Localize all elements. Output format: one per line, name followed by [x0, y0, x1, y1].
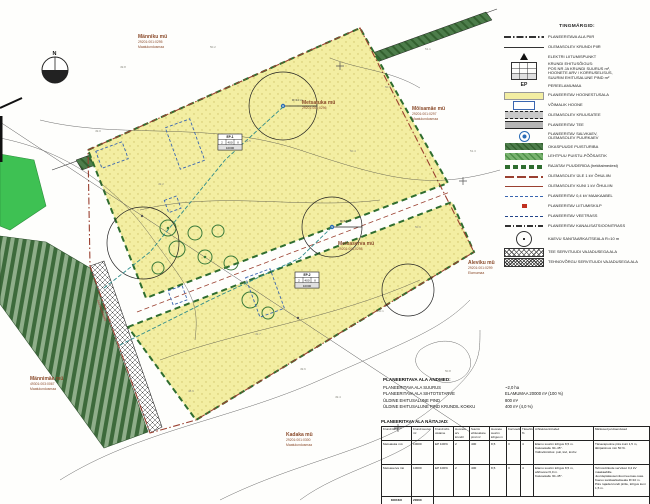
conifer-band-icon	[504, 143, 544, 150]
svg-text:29201:001:0299: 29201:001:0299	[468, 266, 493, 270]
legend-item: TEHNOVÕRGU SERVITUUDI VAJADUSEGA ALA	[504, 258, 650, 267]
ep-box-1: EP-1 2 400 II 10000	[218, 134, 242, 150]
sewer-line-icon	[504, 225, 544, 226]
summary-row: PLANEERITAVA ALA SUURUS~2,0 ha	[383, 385, 645, 390]
legend-item: PLANEERITAVA ALA PIIR	[504, 33, 650, 42]
svg-text:49.8: 49.8	[120, 65, 126, 69]
north-label: N	[53, 51, 57, 57]
grass-patch	[0, 154, 46, 230]
svg-text:50.6: 50.6	[385, 85, 391, 89]
deciduous-band-icon	[504, 153, 544, 160]
svg-text:Maatulundusmaa: Maatulundusmaa	[286, 443, 312, 447]
area-summary: PLANEERITAVA ALA ANDMED: PLANEERITAVA AL…	[383, 377, 645, 411]
svg-text:49.6: 49.6	[300, 367, 306, 371]
svg-text:49.4: 49.4	[335, 395, 341, 399]
svg-text:29201:001:0295: 29201:001:0295	[138, 40, 163, 44]
legend-item: OLEMASOLEV ÜLE 1 kV ÕHULIIN	[504, 172, 650, 181]
indicators-table: Krundi tähis Krundi suurus m² Krundi sih…	[381, 426, 650, 504]
ep-box-pos: EP-2	[303, 273, 310, 277]
legend-item: KRUNDI EHITUSÕIGUS: POS NR JA KRUNDI SUU…	[504, 62, 650, 80]
detail-plan-sheet: R=10 m R=10 m EP-1 2 400 II 10000	[0, 0, 650, 504]
svg-text:50.8: 50.8	[445, 369, 451, 373]
ep-box-size: 10000	[303, 284, 312, 288]
map-neatline	[0, 116, 3, 162]
water-line-icon	[504, 216, 544, 217]
switchboard-icon	[504, 204, 544, 208]
legend-item: VÕIMALIK HOONE	[504, 101, 650, 110]
legend-item: RAJATAV PUUDERIDA (hekitaimedest)	[504, 162, 650, 171]
building-zone-icon	[504, 92, 544, 100]
svg-text:49.0: 49.0	[95, 129, 101, 133]
svg-text:51.1: 51.1	[425, 47, 431, 51]
legend-item: TEE SERVITUUDI VAJADUSEGA ALA	[504, 248, 650, 257]
legend-item: PLANEERITAV KANALISATSIOONITRASS	[504, 221, 650, 230]
summary-row: ÜLDINE EHITUSALUNE PIND KRUNDIL KOKKU400…	[383, 404, 645, 409]
svg-text:50.1: 50.1	[378, 309, 384, 313]
ep-box-floors: II	[237, 141, 239, 145]
svg-text:Maatulundusmaa: Maatulundusmaa	[30, 387, 56, 391]
ep-box-size: 10000	[226, 146, 235, 150]
svg-text:Maatulundusmaa: Maatulundusmaa	[138, 45, 164, 49]
ep-box-floors: II	[314, 279, 316, 283]
table-title: PLANEERITAVA ALA NÄITAJAD:	[381, 419, 649, 424]
svg-text:49.5: 49.5	[245, 139, 251, 143]
overhead-line-high-icon	[504, 176, 544, 178]
svg-text:29201:001:0300: 29201:001:0300	[286, 438, 311, 442]
legend-item: PLANEERITAV HOONESTUSALA	[504, 91, 650, 100]
legend-item: KAEVU SANITAARKAITSEALA R=10 m	[504, 231, 650, 247]
legend-item: PLANEERITAV TEE	[504, 121, 650, 130]
legend-item: PLANEERITAV LIITUMISKILP	[504, 202, 650, 211]
gravel-road-icon	[504, 111, 544, 119]
legend-item: OLEMASOLEV KUNI 1 kV ÕHULIIN	[504, 182, 650, 191]
svg-text:51.3: 51.3	[470, 149, 476, 153]
legend: TINGMÄRGID: PLANEERITAVA ALA PIIR OLEMAS…	[504, 24, 650, 268]
ep-box-2: EP-2 2 400 II 10000	[295, 272, 319, 288]
north-arrow: N	[42, 51, 68, 83]
summary-title: PLANEERITAVA ALA ANDMED:	[383, 377, 645, 382]
legend-item: OLEMASOLEV KRUUSATEE	[504, 111, 650, 120]
svg-text:49.7: 49.7	[255, 332, 261, 336]
legend-item: EPPEREELAMUMAA	[504, 81, 650, 90]
svg-text:29201:001:0297: 29201:001:0297	[412, 112, 437, 116]
legend-item: OLEMASOLEV KRUNDI PIIR	[504, 42, 650, 51]
svg-text:Elamumaa: Elamumaa	[468, 271, 484, 275]
tree-row-icon	[504, 165, 544, 169]
legend-item: PLANEERITAV VEETRASS	[504, 211, 650, 220]
ep-box-bp: 400	[227, 141, 232, 145]
well-icon	[504, 131, 544, 142]
road-servitude-icon	[504, 248, 544, 257]
svg-text:50.4: 50.4	[350, 149, 356, 153]
connection-point-icon	[504, 53, 544, 60]
legend-item: OKASPUUDE PUISTURIBA	[504, 142, 650, 151]
legend-item: ELEKTRI LIITUMISPUNKT	[504, 52, 650, 61]
indicators-table-block: PLANEERITAVA ALA NÄITAJAD: Krundi tähis …	[381, 419, 649, 504]
radius-label: R=10 m	[340, 219, 351, 223]
map-neatline-tick	[0, 98, 22, 108]
legend-title: TINGMÄRGID:	[504, 24, 650, 30]
area-boundary-icon	[504, 36, 544, 38]
table-row: Metsatuka mü 10000 EP 100% 2 400 8,5 II …	[382, 441, 650, 465]
svg-text:48.9: 48.9	[188, 389, 194, 393]
ground-cable-icon	[504, 196, 544, 197]
table-header-row: Krundi tähis Krundi suurus m² Krundi sih…	[382, 426, 650, 441]
table-row: Metsaserva mü 10000 EP 100% 2 400 8,5 II…	[382, 465, 650, 497]
svg-text:49301:003:0067: 49301:003:0067	[30, 382, 55, 386]
possible-house-icon	[504, 101, 544, 110]
svg-text:49.2: 49.2	[158, 182, 164, 186]
legend-item: LEHTPUU PUISTU-PÕÕSASTIK	[504, 152, 650, 161]
table-total-row: KOKKU 20000	[382, 497, 650, 504]
svg-text:50.9: 50.9	[415, 225, 421, 229]
protection-circle-icon	[504, 231, 544, 247]
legend-item: PLANEERITAV SALVKAEV, OLEMASOLEV PUURKAE…	[504, 131, 650, 142]
ep-box-bp: 400	[304, 279, 309, 283]
svg-text:Maatulundusmaa: Maatulundusmaa	[412, 117, 438, 121]
summary-row: ÜLDINE EHITUSALUNE PIND800 m²	[383, 398, 645, 403]
svg-text:29201:001:0298: 29201:001:0298	[338, 247, 363, 251]
landuse-code-icon: EP	[504, 83, 544, 89]
summary-row: PLANEERITAVA ALA SIHTOTSTARVEELAMUMAA 20…	[383, 391, 645, 396]
overhead-line-low-icon	[504, 186, 544, 187]
ep-box-pos: EP-1	[226, 135, 233, 139]
legend-item: PLANEERITAV 0,4 kV MAAKAABEL	[504, 192, 650, 201]
building-rights-box-icon	[504, 62, 544, 80]
plot-boundary-icon	[504, 47, 544, 48]
svg-text:29201:001:0296: 29201:001:0296	[302, 106, 327, 110]
svg-text:50.2: 50.2	[210, 45, 216, 49]
utility-servitude-icon	[504, 258, 544, 267]
planned-road-icon	[504, 121, 544, 129]
